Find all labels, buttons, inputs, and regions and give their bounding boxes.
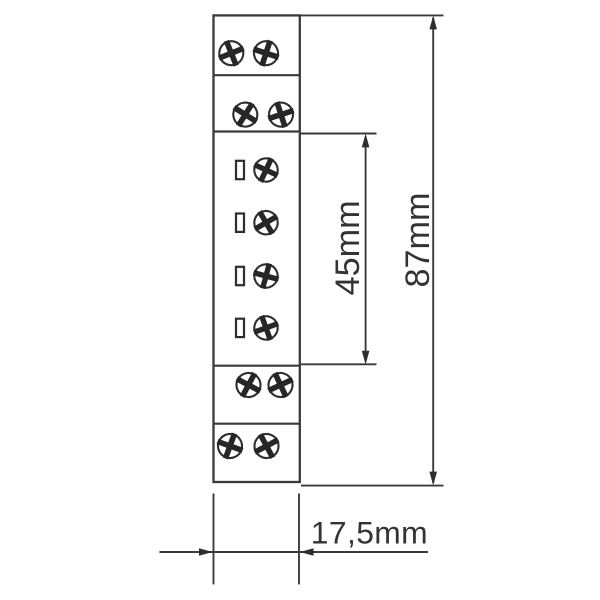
svg-text:17,5mm: 17,5mm [311, 515, 428, 551]
svg-text:87mm: 87mm [399, 193, 437, 288]
svg-text:45mm: 45mm [329, 200, 367, 295]
